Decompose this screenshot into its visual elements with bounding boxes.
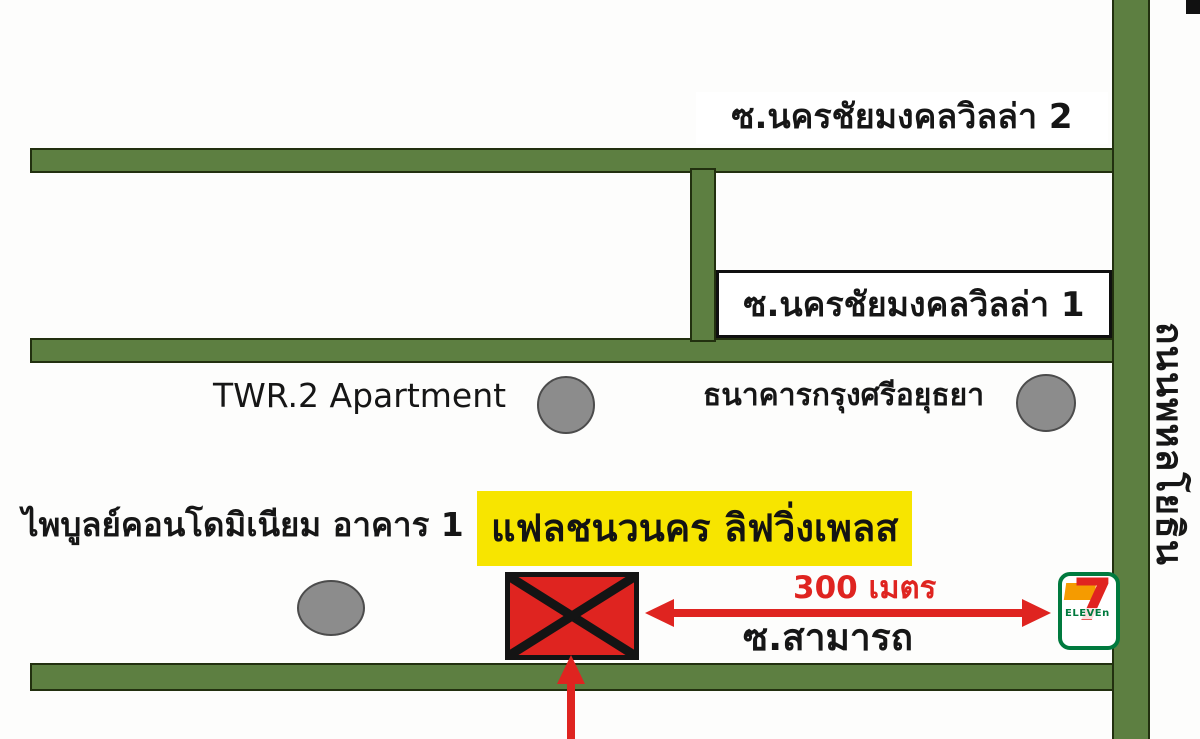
seven-eleven-logo: 7 ELEVEn <box>1058 572 1120 650</box>
label-krungsri-bank: ธนาคารกรุงศรีอยุธยา <box>703 379 984 414</box>
page-corner-mark <box>1186 0 1200 14</box>
x-cross-icon <box>510 577 634 655</box>
label-twr2-apartment: TWR.2 Apartment <box>213 377 506 415</box>
road-bottom-horizontal-soi-samart <box>30 663 1116 691</box>
label-phahonyothin-road-vertical: ถนนพหลโยธิน <box>1140 322 1199 566</box>
destination-highlight-label: แฟลชนวนคร ลิฟวิ่งเพลส <box>477 491 912 566</box>
distance-label: 300 เมตร <box>793 571 936 607</box>
landmark-circle-apartment <box>537 376 595 434</box>
label-soi-villa-1: ซ.นครชัยมงคลวิลล่า 1 <box>743 277 1084 331</box>
destination-marker-box <box>505 572 639 660</box>
landmark-circle-bank <box>1016 374 1076 432</box>
road-connector-vertical <box>690 168 716 342</box>
seven-eleven-7-icon: 7 <box>1073 572 1113 634</box>
landmark-circle-condo <box>297 580 365 636</box>
label-soi-samart: ซ.สามารถ <box>743 617 913 660</box>
label-soi-villa-2: ซ.นครชัยมงคลวิลล่า 2 <box>696 92 1108 144</box>
road-middle-horizontal <box>30 338 1116 363</box>
label-paiboon-condominium: ไพบูลย์คอนโดมิเนียม อาคาร 1 <box>22 506 464 544</box>
road-top-horizontal <box>30 148 1116 173</box>
label-box-soi-villa-1: ซ.นครชัยมงคลวิลล่า 1 <box>716 270 1112 338</box>
hand-drawn-location-map: ซ.นครชัยมงคลวิลล่า 2 ซ.นครชัยมงคลวิลล่า … <box>0 0 1200 739</box>
seven-eleven-wordmark: ELEVEn <box>1064 608 1111 619</box>
